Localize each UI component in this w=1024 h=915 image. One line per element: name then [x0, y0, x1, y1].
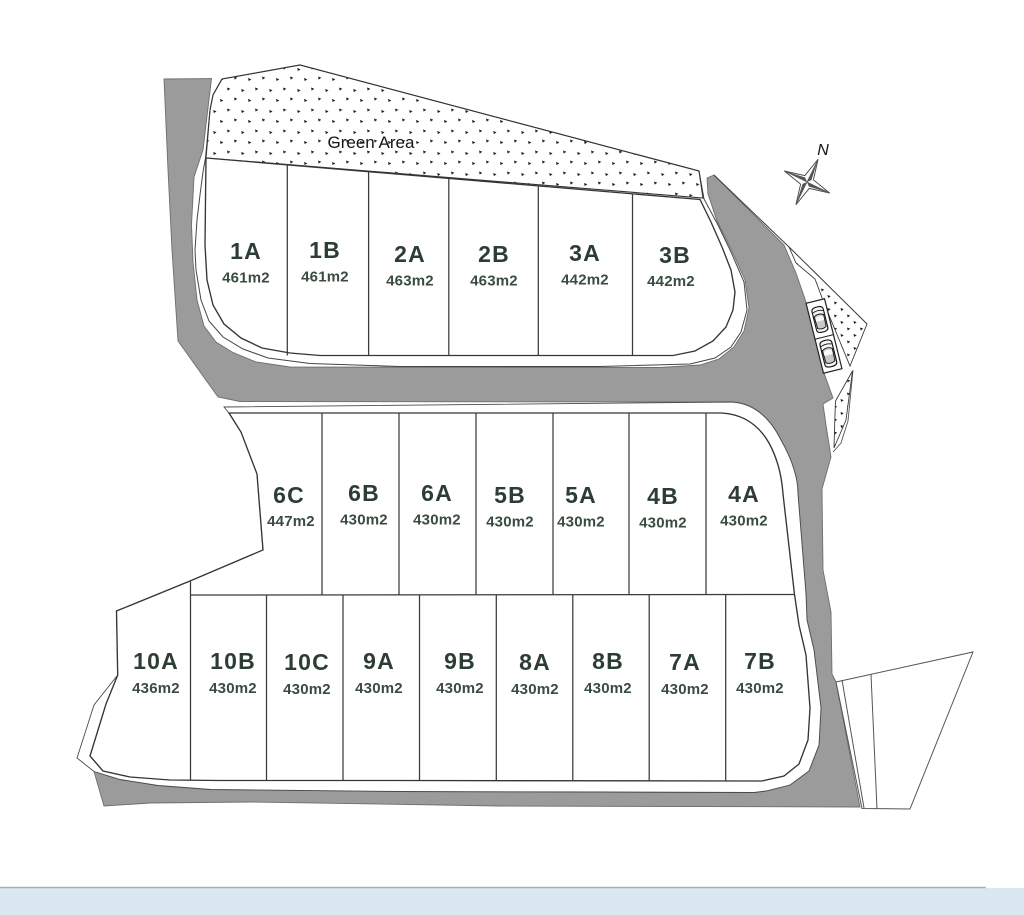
svg-text:430m2: 430m2: [436, 680, 484, 697]
svg-text:10C: 10C: [284, 649, 330, 675]
svg-text:430m2: 430m2: [557, 514, 605, 531]
svg-text:430m2: 430m2: [413, 512, 461, 529]
svg-text:4B: 4B: [647, 483, 679, 509]
svg-text:463m2: 463m2: [470, 273, 518, 290]
svg-text:3B: 3B: [659, 242, 691, 268]
svg-text:5B: 5B: [494, 482, 526, 508]
svg-text:430m2: 430m2: [283, 681, 331, 698]
svg-text:430m2: 430m2: [736, 680, 784, 697]
svg-text:N: N: [817, 142, 829, 159]
svg-text:7A: 7A: [669, 649, 701, 675]
svg-text:3A: 3A: [569, 240, 601, 266]
svg-text:463m2: 463m2: [386, 273, 434, 290]
svg-text:8B: 8B: [592, 648, 624, 674]
svg-text:2B: 2B: [478, 241, 510, 267]
svg-text:10A: 10A: [133, 648, 179, 674]
svg-text:1B: 1B: [309, 237, 341, 263]
svg-text:436m2: 436m2: [132, 680, 180, 697]
svg-text:9B: 9B: [444, 648, 476, 674]
svg-text:5A: 5A: [565, 482, 597, 508]
svg-text:430m2: 430m2: [511, 681, 559, 698]
svg-text:430m2: 430m2: [639, 515, 687, 532]
svg-text:8A: 8A: [519, 649, 551, 675]
svg-text:461m2: 461m2: [301, 269, 349, 286]
svg-text:6A: 6A: [421, 480, 453, 506]
svg-text:9A: 9A: [363, 648, 395, 674]
svg-text:10B: 10B: [210, 648, 256, 674]
svg-text:430m2: 430m2: [661, 681, 709, 698]
svg-text:7B: 7B: [744, 648, 776, 674]
svg-text:1A: 1A: [230, 238, 262, 264]
svg-text:430m2: 430m2: [584, 680, 632, 697]
svg-text:430m2: 430m2: [486, 514, 534, 531]
svg-text:6B: 6B: [348, 480, 380, 506]
svg-text:447m2: 447m2: [267, 513, 315, 530]
svg-text:430m2: 430m2: [340, 512, 388, 529]
svg-text:6C: 6C: [273, 482, 305, 508]
svg-text:2A: 2A: [394, 241, 426, 267]
svg-text:442m2: 442m2: [647, 273, 695, 290]
svg-text:Green Area: Green Area: [328, 133, 415, 152]
svg-text:430m2: 430m2: [720, 513, 768, 530]
svg-text:430m2: 430m2: [209, 680, 257, 697]
svg-text:4A: 4A: [728, 481, 760, 507]
svg-text:430m2: 430m2: [355, 680, 403, 697]
svg-text:442m2: 442m2: [561, 272, 609, 289]
svg-text:461m2: 461m2: [222, 270, 270, 287]
